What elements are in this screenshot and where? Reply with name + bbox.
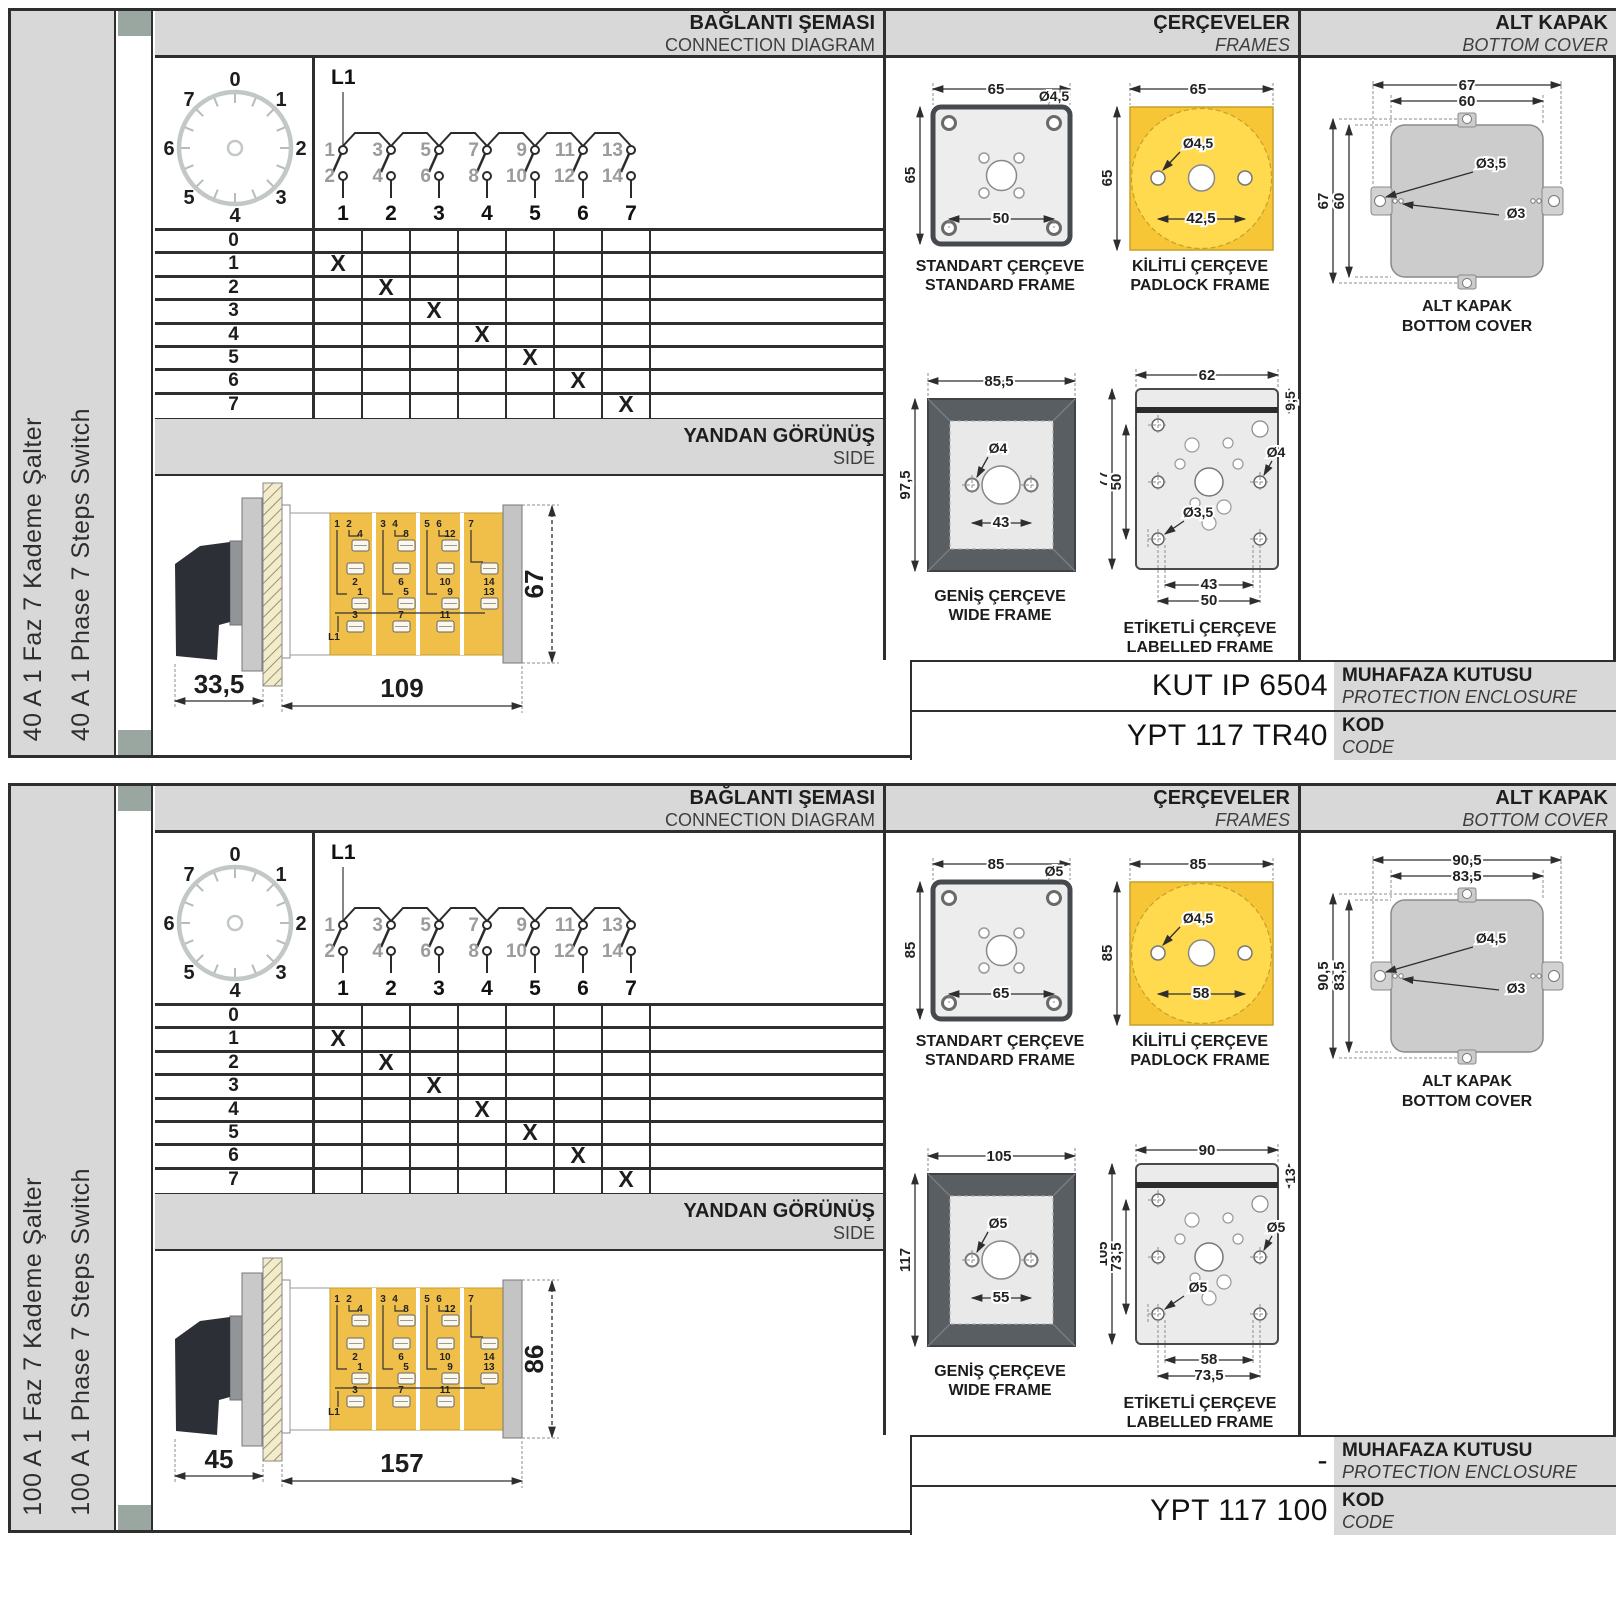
contact-cell <box>315 1053 363 1073</box>
dim-body: 109 <box>380 673 423 703</box>
rotary-dial-diagram: 0 1 2 3 4 5 6 7 <box>155 833 312 1000</box>
side-view-label-en: SIDE <box>155 1223 875 1243</box>
terminal-number: 10 <box>506 166 527 187</box>
dim-wide-width: 105 <box>986 1148 1011 1165</box>
contact-cell <box>411 1006 459 1026</box>
contact-cell <box>555 301 603 321</box>
dim-standard-width: 65 <box>988 81 1005 98</box>
table-filler <box>651 231 883 251</box>
dim-standard-height: 65 <box>902 167 919 184</box>
row-label: 7 <box>155 395 315 418</box>
contact-cell <box>363 301 411 321</box>
dial-position-4: 4 <box>229 205 241 225</box>
contact-cell: X <box>363 278 411 298</box>
padlock-caption-en: PADLOCK FRAME <box>1130 1052 1270 1069</box>
row-label: 2 <box>155 278 315 298</box>
code-label: KOD CODE <box>1334 712 1616 760</box>
contact-cell <box>603 1100 651 1120</box>
dial-position-3: 3 <box>275 187 286 209</box>
output-number: 1 <box>337 202 349 225</box>
padlock-frame-drawing: 85 Ø4,5 85 58 KİLİTLİ ÇERÇEVE PADLOCK FR… <box>1100 844 1300 1134</box>
output-number: 3 <box>433 977 445 1000</box>
dim-standard-width: 85 <box>988 856 1005 873</box>
table-row: 3X <box>155 1076 883 1099</box>
code-row: YPT 117 TR40 KOD CODE <box>912 710 1616 760</box>
terminal-label: 4 <box>357 1304 363 1315</box>
side-view-label-tr: YANDAN GÖRÜNÜŞ <box>155 1194 875 1223</box>
pole-number: 5 <box>424 1294 430 1305</box>
wide-caption-en: WIDE FRAME <box>948 607 1051 624</box>
dim-cover-hole2: Ø3 <box>1507 205 1526 221</box>
header-cover-en: BOTTOM COVER <box>1301 810 1608 830</box>
table-row: 1X <box>155 254 883 277</box>
table-row: 4X <box>155 1100 883 1123</box>
terminal-number: 9 <box>516 140 527 161</box>
dial-position-6: 6 <box>163 913 174 935</box>
table-row: 3X <box>155 301 883 324</box>
pole-number: 5 <box>424 519 430 530</box>
dial-position-5: 5 <box>183 187 194 209</box>
terminal-number: 9 <box>516 915 527 936</box>
dim-wide-hole: Ø4 <box>989 440 1008 456</box>
l1-body-label: L1 <box>328 1407 340 1418</box>
contact-schematic: L1 1 3 5 7 9 11 13 2 4 <box>315 833 883 1003</box>
terminal-number: 7 <box>468 140 479 161</box>
dim-standard-inner: 50 <box>993 210 1010 227</box>
contact-cell <box>363 371 411 391</box>
section-title-en: 100 A 1 Phase 7 Steps Switch <box>67 1168 96 1516</box>
dial-position-0: 0 <box>229 69 240 91</box>
contact-cell <box>555 1076 603 1096</box>
dim-labelled-w1: 58 <box>1201 1351 1218 1368</box>
terminal-number: 2 <box>324 166 335 187</box>
contact-cell <box>315 1006 363 1026</box>
mounting-plate <box>242 1273 262 1446</box>
code-rows: KUT IP 6504 MUHAFAZA KUTUSU PROTECTION E… <box>910 660 1616 760</box>
dim-standard-height: 85 <box>902 942 919 959</box>
terminal-number: 12 <box>554 166 575 187</box>
side-view-label-en: SIDE <box>155 448 875 468</box>
contact-cell: X <box>411 301 459 321</box>
code-label-en: CODE <box>1342 737 1616 757</box>
standard-caption-tr: STANDART ÇERÇEVE <box>916 1033 1085 1050</box>
contact-cell <box>363 325 411 345</box>
wide-caption-tr: GENİŞ ÇERÇEVE <box>934 1362 1066 1380</box>
contact-cell: X <box>555 371 603 391</box>
terminal-label: 9 <box>447 1362 453 1373</box>
contact-cell <box>507 278 555 298</box>
table-row: 0 <box>155 231 883 254</box>
dim-padlock-inner: 58 <box>1193 985 1210 1002</box>
output-number: 6 <box>577 202 589 225</box>
padlock-caption-en: PADLOCK FRAME <box>1130 277 1270 294</box>
pole-number: 6 <box>436 519 442 530</box>
dim-labelled-hole-left: Ø3,5 <box>1183 504 1214 520</box>
switch-handle <box>175 1317 230 1435</box>
terminal-number: 4 <box>372 166 383 187</box>
dim-cover-h2: 83,5 <box>1331 961 1348 990</box>
side-view-band: YANDAN GÖRÜNÜŞ SIDE <box>155 1193 883 1251</box>
pole-number: 3 <box>380 1294 386 1305</box>
table-filler <box>651 1076 883 1096</box>
pole-number: 3 <box>380 519 386 530</box>
dial-position-3: 3 <box>275 962 286 984</box>
contact-cell <box>411 395 459 418</box>
enclosure-code-value: - <box>912 1437 1334 1485</box>
contact-cell <box>603 1076 651 1096</box>
contact-cell <box>555 231 603 251</box>
contact-cell <box>603 1053 651 1073</box>
contact-cell <box>459 348 507 368</box>
dim-cover-h1: 90,5 <box>1315 961 1332 990</box>
contact-cell <box>459 254 507 274</box>
side-view-drawing: 1 2 4 2 1 3 3 4 8 6 5 7 <box>155 476 883 760</box>
table-row: 7X <box>155 395 883 418</box>
contact-cell <box>315 231 363 251</box>
spacer-plate <box>282 505 290 658</box>
dim-labelled-width: 90 <box>1199 1142 1216 1159</box>
l1-label: L1 <box>331 66 356 89</box>
dim-labelled-width: 62 <box>1199 367 1216 384</box>
pole-number: 2 <box>346 519 352 530</box>
contact-cell <box>507 301 555 321</box>
contact-cell: X <box>603 395 651 418</box>
dim-padlock-height: 85 <box>1100 945 1116 962</box>
enclosure-code-value: KUT IP 6504 <box>912 662 1334 710</box>
cover-caption-en: BOTTOM COVER <box>1402 1093 1533 1110</box>
dim-labelled-inner-height: 73,5 <box>1108 1242 1125 1271</box>
section-content: BAĞLANTI ŞEMASI CONNECTION DIAGRAM ÇERÇE… <box>155 786 1616 1530</box>
dim-cover-hole1: Ø4,5 <box>1476 930 1507 946</box>
pole-number: 1 <box>334 519 340 530</box>
contact-cell <box>507 371 555 391</box>
enclosure-row: KUT IP 6504 MUHAFAZA KUTUSU PROTECTION E… <box>912 660 1616 710</box>
dim-padlock-width: 65 <box>1190 81 1207 98</box>
labelled-caption-tr: ETİKETLİ ÇERÇEVE <box>1124 619 1277 637</box>
dim-wide-height: 117 <box>900 1248 914 1272</box>
schematic-cell: L1 1 3 5 7 9 11 13 2 4 <box>315 833 883 1003</box>
labelled-caption-en: LABELLED FRAME <box>1127 639 1274 656</box>
dim-labelled-band: 9,5 <box>1282 391 1298 411</box>
table-row: 5X <box>155 348 883 371</box>
contact-cell: X <box>555 1146 603 1166</box>
terminal-label: 3 <box>352 610 358 621</box>
dim-height: 67 <box>519 570 549 599</box>
contact-cell <box>507 1029 555 1049</box>
contact-cell <box>555 1100 603 1120</box>
section-title-tr: 40 A 1 Faz 7 Kademe Şalter <box>19 417 48 741</box>
terminal-number: 13 <box>602 140 623 161</box>
padlock-caption-tr: KİLİTLİ ÇERÇEVE <box>1132 1032 1268 1050</box>
terminal-number: 11 <box>555 915 576 936</box>
dial-position-5: 5 <box>183 962 194 984</box>
side-view-label-tr: YANDAN GÖRÜNÜŞ <box>155 419 875 448</box>
table-row: 6X <box>155 371 883 394</box>
contact-cell <box>603 301 651 321</box>
table-filler <box>651 348 883 368</box>
terminal-label: 3 <box>352 1385 358 1396</box>
contact-schematic: L1 1 3 5 7 9 11 13 2 4 <box>315 58 883 228</box>
standard-caption-en: STANDARD FRAME <box>925 277 1075 294</box>
dim-cover-w1: 67 <box>1459 77 1476 94</box>
terminal-number: 5 <box>420 140 431 161</box>
dim-cover-hole2: Ø3 <box>1507 980 1526 996</box>
contact-cell: X <box>315 1029 363 1049</box>
row-label: 1 <box>155 1029 315 1049</box>
contact-cell <box>555 1053 603 1073</box>
contact-cell <box>507 1006 555 1026</box>
header-connection: BAĞLANTI ŞEMASI CONNECTION DIAGRAM <box>155 786 883 833</box>
product-section: 40 A 1 Faz 7 Kademe Şalter 40 A 1 Phase … <box>8 8 1616 758</box>
contact-cell <box>555 1170 603 1193</box>
contact-cell <box>555 1006 603 1026</box>
code-label-en: CODE <box>1342 1512 1616 1532</box>
output-number: 1 <box>337 977 349 1000</box>
terminal-number: 1 <box>324 915 335 936</box>
terminal-number: 14 <box>602 166 624 187</box>
table-row: 0 <box>155 1006 883 1029</box>
table-filler <box>651 371 883 391</box>
contact-cell <box>315 1146 363 1166</box>
dim-handle: 33,5 <box>194 669 245 699</box>
code-label-tr: KOD <box>1342 714 1616 737</box>
table-filler <box>651 1100 883 1120</box>
contact-cell: X <box>411 1076 459 1096</box>
contact-cell <box>363 1029 411 1049</box>
padlock-frame-drawing: 65 Ø4,5 65 42,5 KİLİTLİ ÇERÇEVE PADLOCK … <box>1100 69 1300 359</box>
table-row: 4X <box>155 325 883 348</box>
l1-label: L1 <box>331 841 356 864</box>
bottom-cover-drawing: 67 60 67 60 Ø3,5 Ø3 ALT KAPAK BOTTOM CO <box>1315 73 1615 343</box>
header-connection-en: CONNECTION DIAGRAM <box>155 810 875 830</box>
table-filler <box>651 1029 883 1049</box>
product-section: 100 A 1 Faz 7 Kademe Şalter 100 A 1 Phas… <box>8 783 1616 1533</box>
standard-caption-tr: STANDART ÇERÇEVE <box>916 258 1085 275</box>
wide-caption-tr: GENİŞ ÇERÇEVE <box>934 587 1066 605</box>
contact-cell <box>603 254 651 274</box>
contact-cell <box>459 1006 507 1026</box>
contact-cell <box>315 278 363 298</box>
contact-cell <box>411 278 459 298</box>
contact-cell: X <box>507 348 555 368</box>
section-sidebar: 100 A 1 Faz 7 Kademe Şalter 100 A 1 Phas… <box>11 786 116 1530</box>
dim-wide-inner: 55 <box>993 1289 1010 1306</box>
spine-column <box>118 11 153 755</box>
dim-padlock-inner: 42,5 <box>1186 210 1215 227</box>
dim-cover-hole1: Ø3,5 <box>1476 155 1507 171</box>
pole-number: 7 <box>468 1294 474 1305</box>
terminal-number: 3 <box>372 915 383 936</box>
section-content: BAĞLANTI ŞEMASI CONNECTION DIAGRAM ÇERÇE… <box>155 11 1616 755</box>
position-table: 01X2X3X4X5X6X7X <box>155 1003 883 1193</box>
dim-padlock-width: 85 <box>1190 856 1207 873</box>
contact-cell <box>555 1029 603 1049</box>
contact-cell <box>411 1100 459 1120</box>
terminal-label: 12 <box>444 1304 456 1315</box>
dial-position-1: 1 <box>275 89 286 111</box>
header-cover-en: BOTTOM COVER <box>1301 35 1608 55</box>
section-title-en: 40 A 1 Phase 7 Steps Switch <box>67 408 96 741</box>
dim-cover-h1: 67 <box>1315 193 1332 210</box>
contact-cell <box>315 395 363 418</box>
side-view-band: YANDAN GÖRÜNÜŞ SIDE <box>155 418 883 476</box>
contact-cell <box>315 301 363 321</box>
table-filler <box>651 395 883 418</box>
contact-cell: X <box>603 1170 651 1193</box>
contact-cell <box>459 371 507 391</box>
enclosure-label-en: PROTECTION ENCLOSURE <box>1342 687 1616 707</box>
dim-height: 86 <box>519 1345 549 1374</box>
handle-hub <box>230 1316 243 1400</box>
dim-wide-width: 85,5 <box>984 373 1013 390</box>
contact-cell <box>411 348 459 368</box>
wide-frame-drawing: 105 Ø5 117 55 GENİŞ ÇERÇEVE WIDE FRAME <box>900 1136 1100 1434</box>
contact-cell <box>411 1053 459 1073</box>
section-title-tr: 100 A 1 Faz 7 Kademe Şalter <box>19 1177 48 1516</box>
dial-position-7: 7 <box>183 864 194 886</box>
header-connection-tr: BAĞLANTI ŞEMASI <box>155 11 875 35</box>
table-filler <box>651 1006 883 1026</box>
pole-number: 4 <box>392 519 398 530</box>
contact-cell <box>411 1170 459 1193</box>
code-rows: - MUHAFAZA KUTUSU PROTECTION ENCLOSURE Y… <box>910 1435 1616 1535</box>
cover-caption-tr: ALT KAPAK <box>1422 298 1513 315</box>
header-frames-en: FRAMES <box>886 35 1290 55</box>
terminal-label: 7 <box>398 1385 404 1396</box>
table-filler <box>651 1170 883 1193</box>
contact-cell <box>315 348 363 368</box>
output-number: 5 <box>529 977 541 1000</box>
row-label: 7 <box>155 1170 315 1193</box>
contact-cell <box>459 1053 507 1073</box>
table-row: 1X <box>155 1029 883 1052</box>
labelled-caption-en: LABELLED FRAME <box>1127 1414 1274 1431</box>
contact-cell <box>315 1100 363 1120</box>
spine-square-bottom <box>118 1505 151 1530</box>
pole-number: 4 <box>392 1294 398 1305</box>
terminal-number: 12 <box>554 941 575 962</box>
contact-cell <box>411 371 459 391</box>
code-label-tr: KOD <box>1342 1489 1616 1512</box>
dial-position-4: 4 <box>229 980 241 1000</box>
contact-cell <box>363 395 411 418</box>
terminal-label: 12 <box>444 529 456 540</box>
contact-cell <box>459 301 507 321</box>
table-filler <box>651 301 883 321</box>
dim-wide-hole: Ø5 <box>989 1215 1008 1231</box>
schematic-cell: L1 1 3 5 7 9 11 13 2 4 <box>315 58 883 228</box>
contact-cell: X <box>459 1100 507 1120</box>
dim-handle: 45 <box>205 1444 234 1474</box>
terminal-number: 8 <box>468 166 479 187</box>
contact-cell <box>555 395 603 418</box>
dim-labelled-w2: 50 <box>1201 592 1218 609</box>
dim-padlock-hole: Ø4,5 <box>1183 910 1214 926</box>
row-label: 0 <box>155 231 315 251</box>
row-label: 6 <box>155 371 315 391</box>
header-cover-tr: ALT KAPAK <box>1301 786 1608 810</box>
table-row: 2X <box>155 1053 883 1076</box>
wide-caption-en: WIDE FRAME <box>948 1382 1051 1399</box>
cover-body <box>1391 125 1543 277</box>
table-filler <box>651 254 883 274</box>
contact-cell <box>507 1100 555 1120</box>
contact-cell <box>411 254 459 274</box>
table-row: 5X <box>155 1123 883 1146</box>
terminal-number: 6 <box>420 166 431 187</box>
dial-cell: 0 1 2 3 4 5 6 7 <box>155 833 315 1003</box>
terminal-number: 10 <box>506 941 527 962</box>
enclosure-row: - MUHAFAZA KUTUSU PROTECTION ENCLOSURE <box>912 1435 1616 1485</box>
enclosure-label-en: PROTECTION ENCLOSURE <box>1342 1462 1616 1482</box>
table-filler <box>651 1053 883 1073</box>
terminal-label: 4 <box>357 529 363 540</box>
output-number: 7 <box>625 977 637 1000</box>
table-filler <box>651 278 883 298</box>
output-number: 7 <box>625 202 637 225</box>
header-frames-tr: ÇERÇEVELER <box>886 786 1290 810</box>
spine-square-top <box>118 786 151 811</box>
output-number: 2 <box>385 977 397 1000</box>
catalog-page: 40 A 1 Faz 7 Kademe Şalter 40 A 1 Phase … <box>0 0 1623 1623</box>
contact-cell <box>555 1123 603 1143</box>
contact-cell <box>603 371 651 391</box>
dial-position-1: 1 <box>275 864 286 886</box>
contact-cell <box>507 1053 555 1073</box>
pole-number: 2 <box>346 1294 352 1305</box>
enclosure-label-tr: MUHAFAZA KUTUSU <box>1342 1439 1616 1462</box>
dim-labelled-w1: 43 <box>1201 576 1218 593</box>
contact-cell <box>315 325 363 345</box>
terminal-label: 8 <box>403 529 409 540</box>
terminal-label: 13 <box>483 587 495 598</box>
contact-cell <box>507 395 555 418</box>
enclosure-label: MUHAFAZA KUTUSU PROTECTION ENCLOSURE <box>1334 662 1616 710</box>
dim-standard-hole: Ø4,5 <box>1039 88 1070 104</box>
terminal-number: 14 <box>602 941 624 962</box>
row-label: 1 <box>155 254 315 274</box>
terminal-label: 1 <box>357 587 363 598</box>
label-strip <box>1136 407 1278 413</box>
panel-plate <box>263 1258 282 1461</box>
dial-position-6: 6 <box>163 138 174 160</box>
contact-cell: X <box>363 1053 411 1073</box>
row-label: 4 <box>155 325 315 345</box>
l1-body-label: L1 <box>328 632 340 643</box>
header-frames-en: FRAMES <box>886 810 1290 830</box>
dim-labelled-hole-right: Ø4 <box>1267 444 1286 460</box>
dim-cover-h2: 60 <box>1331 193 1348 210</box>
column-divider-1 <box>883 11 886 660</box>
cover-caption-en: BOTTOM COVER <box>1402 318 1533 335</box>
contact-cell <box>363 1170 411 1193</box>
pole-number: 6 <box>436 1294 442 1305</box>
dim-labelled-hole-right: Ø5 <box>1267 1219 1286 1235</box>
side-view-drawing: 1 2 4 2 1 3 3 4 8 6 5 7 <box>155 1251 883 1535</box>
table-row: 2X <box>155 278 883 301</box>
handle-hub <box>230 541 243 625</box>
contact-cell <box>459 1170 507 1193</box>
dim-padlock-height: 65 <box>1100 170 1116 187</box>
terminal-label: 7 <box>398 610 404 621</box>
terminal-number: 4 <box>372 941 383 962</box>
padlock-caption-tr: KİLİTLİ ÇERÇEVE <box>1132 257 1268 275</box>
column-divider-1 <box>883 786 886 1435</box>
terminal-number: 7 <box>468 915 479 936</box>
header-frames-tr: ÇERÇEVELER <box>886 11 1290 35</box>
standard-caption-en: STANDARD FRAME <box>925 1052 1075 1069</box>
contact-cell <box>315 1076 363 1096</box>
